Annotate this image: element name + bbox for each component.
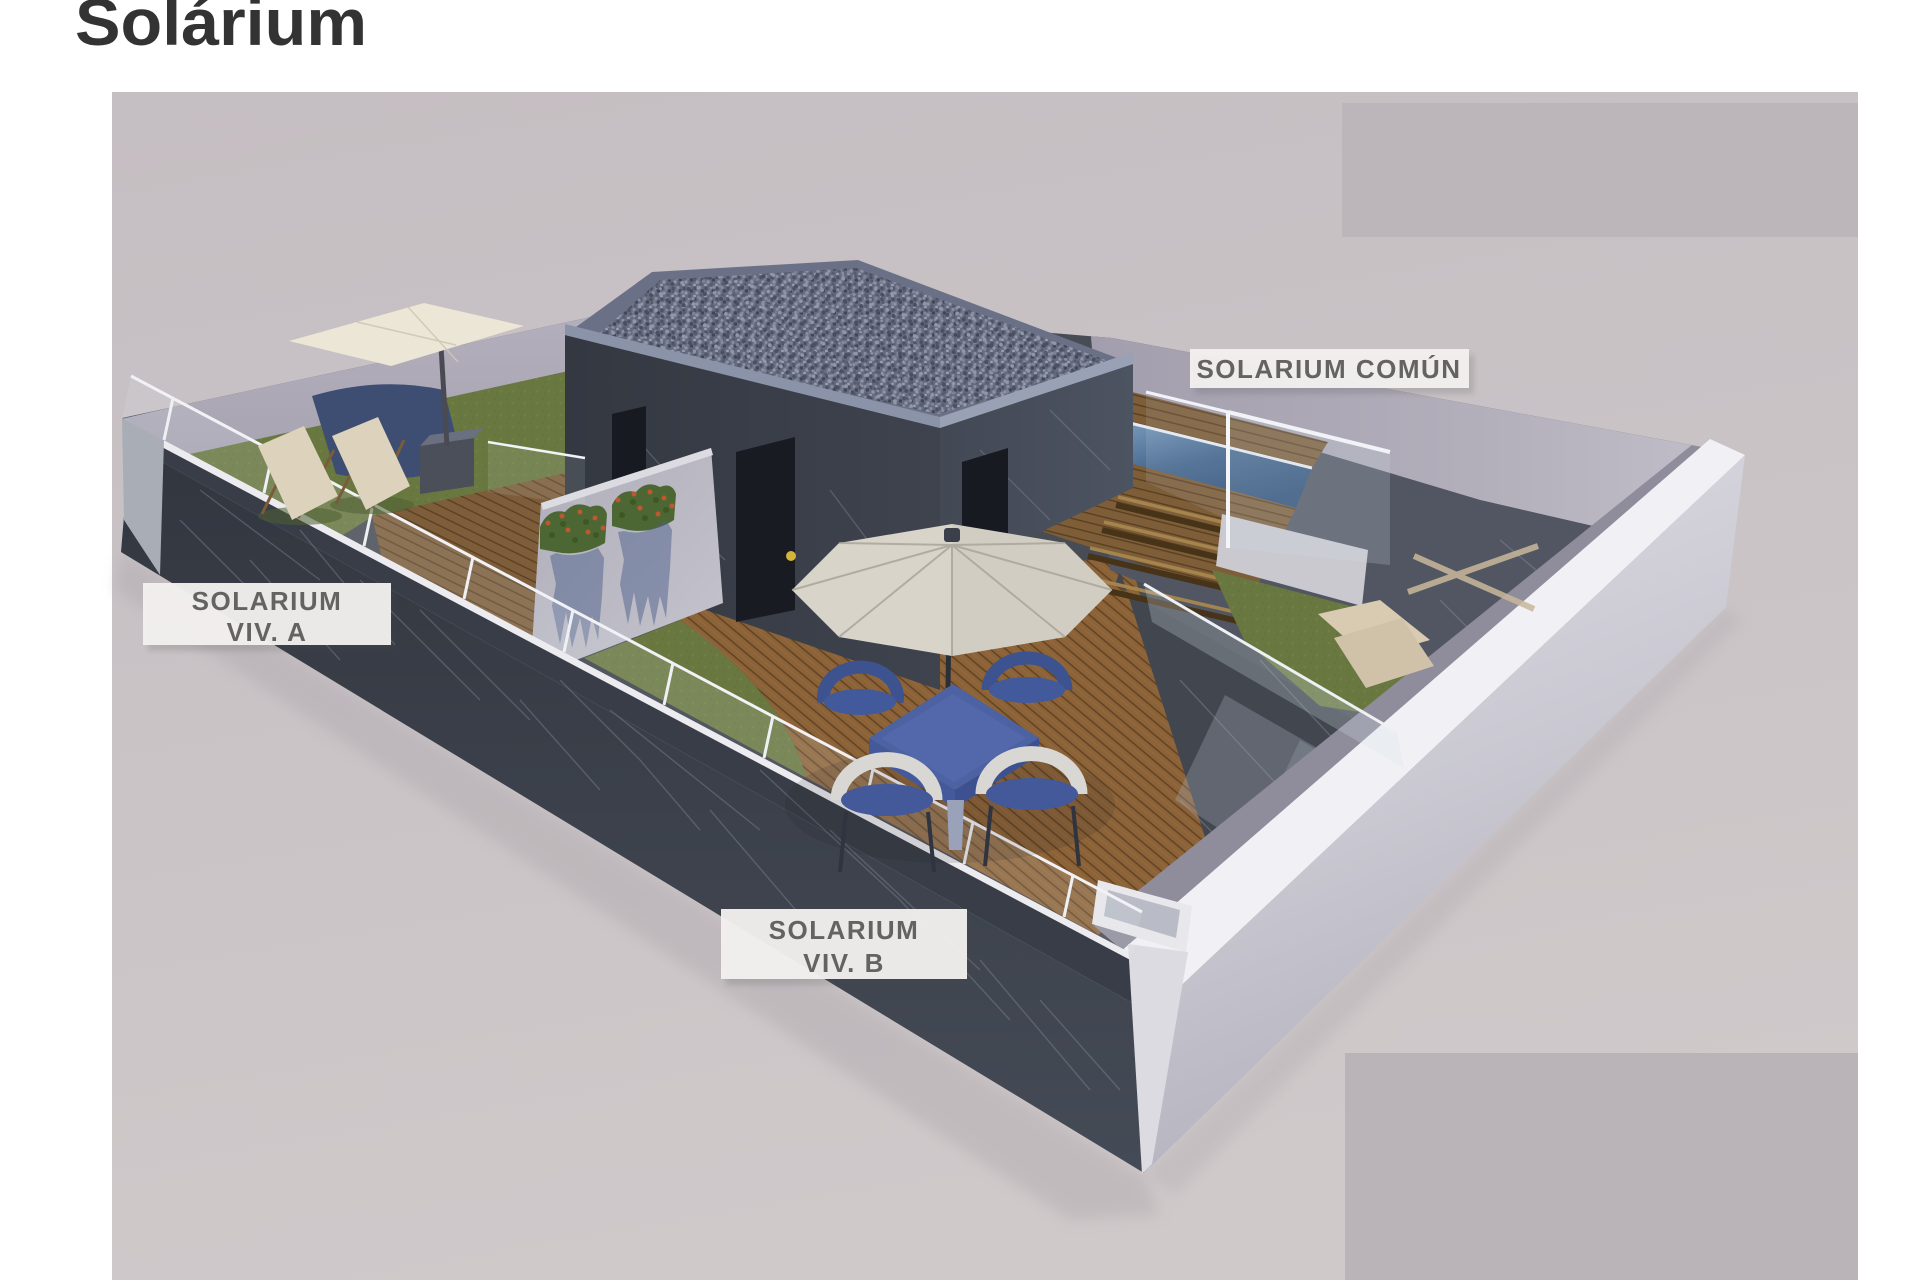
svg-text:SOLARIUM: SOLARIUM	[192, 586, 343, 616]
svg-text:SOLARIUM COMÚN: SOLARIUM COMÚN	[1196, 354, 1461, 384]
svg-text:VIV. B: VIV. B	[803, 948, 885, 978]
svg-text:SOLARIUM: SOLARIUM	[769, 915, 920, 945]
svg-text:VIV. A: VIV. A	[227, 617, 308, 647]
svg-text:Solárium: Solárium	[75, 0, 367, 59]
